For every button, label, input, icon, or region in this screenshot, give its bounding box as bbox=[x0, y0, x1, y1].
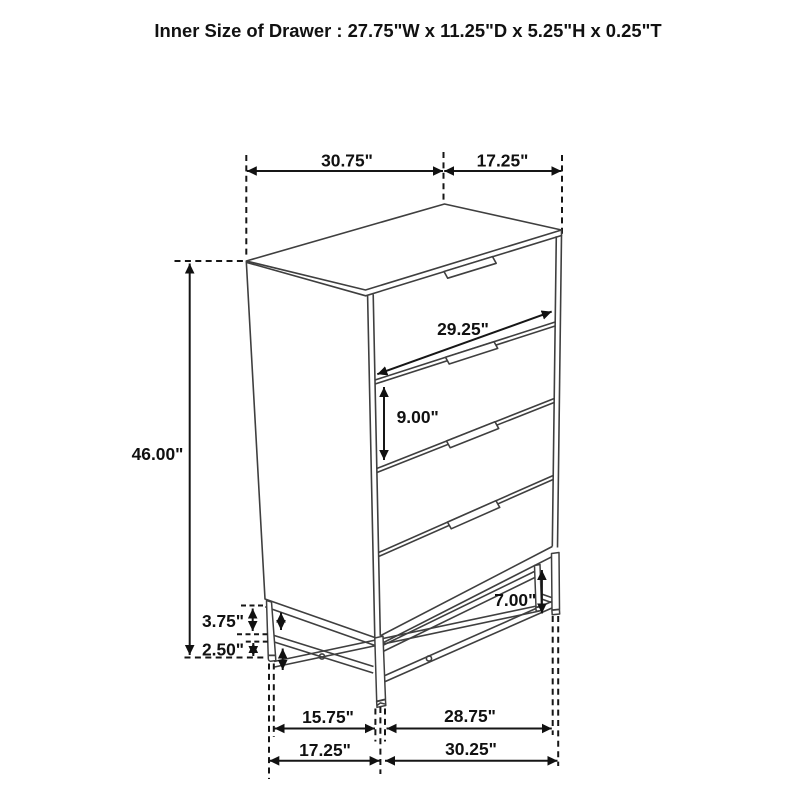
svg-text:30.25": 30.25" bbox=[445, 739, 497, 759]
svg-text:2.50": 2.50" bbox=[202, 639, 244, 659]
svg-text:30.75": 30.75" bbox=[321, 151, 373, 171]
svg-text:17.25": 17.25" bbox=[299, 740, 351, 760]
svg-text:7.00": 7.00" bbox=[494, 590, 536, 610]
svg-text:Inner Size of Drawer : 27.75"W: Inner Size of Drawer : 27.75"W x 11.25"D… bbox=[154, 20, 662, 41]
svg-text:29.25": 29.25" bbox=[437, 319, 489, 339]
svg-text:46.00": 46.00" bbox=[132, 444, 184, 464]
svg-text:9.00": 9.00" bbox=[397, 407, 439, 427]
svg-text:15.75": 15.75" bbox=[302, 707, 354, 727]
svg-text:17.25": 17.25" bbox=[477, 151, 529, 171]
svg-text:28.75": 28.75" bbox=[444, 706, 496, 726]
svg-text:3.75": 3.75" bbox=[202, 611, 244, 631]
